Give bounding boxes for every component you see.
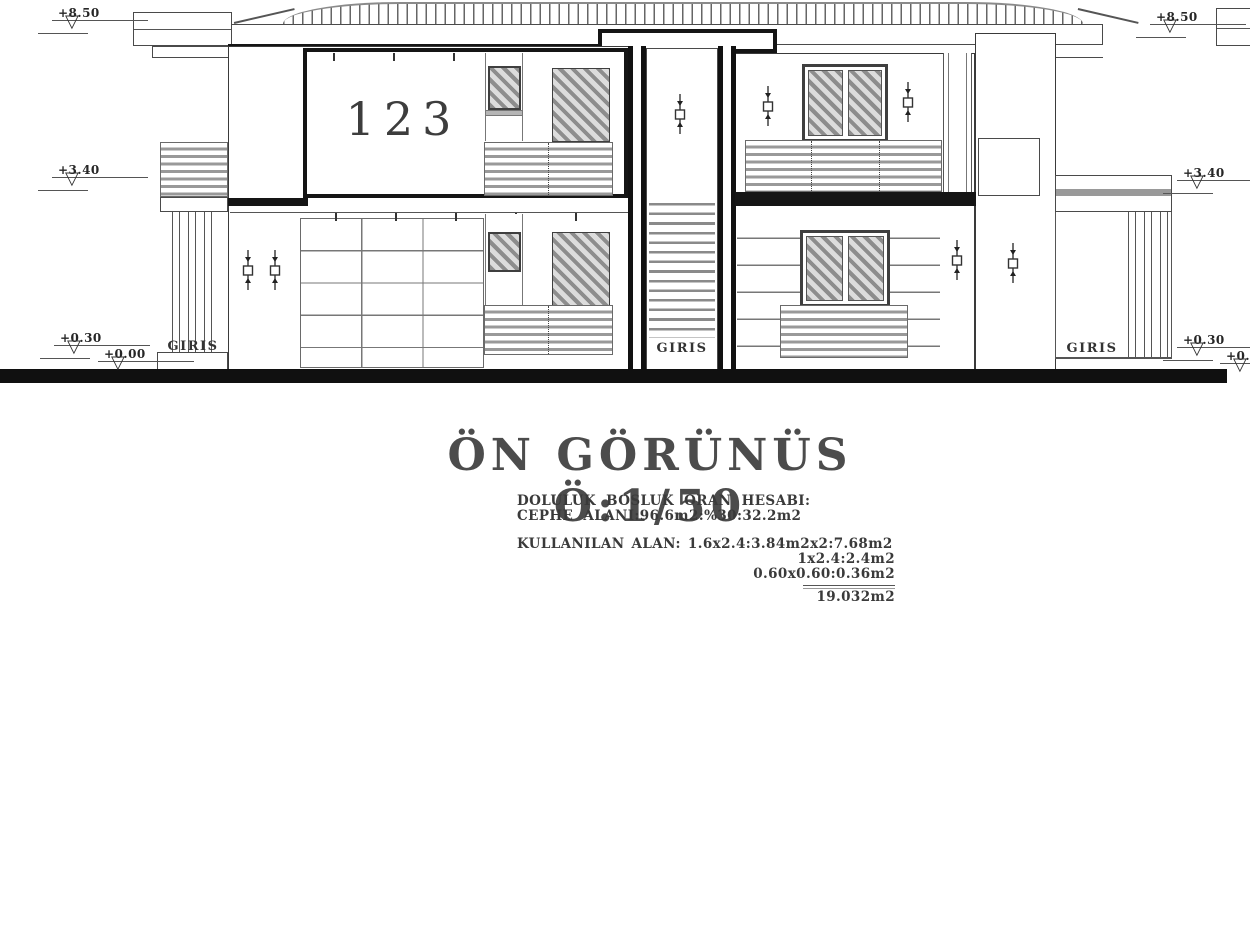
upper-large-window [552,68,610,142]
right-wing-canopy [1055,175,1172,212]
calc-used-area-3: 0.60x0.60:0.36m2 [505,567,905,582]
upper-small-window-sill [485,110,523,116]
right-wing-base-line [1055,357,1172,359]
tower-column-right [718,46,736,372]
tower-column-left [628,46,646,372]
calculation-block: DOLULUK BOSLUK ORAN HESABI: CEPHE ALANI:… [505,494,905,605]
left-wing-canopy-band [160,197,228,212]
upper-left-balcony-louvers [484,142,613,196]
ground-anchor-ticks [335,213,585,221]
pergola-slat [204,212,212,352]
elevation-marker-right-ground: +0.00 ▽ [1226,349,1250,389]
elevation-value: +0.00 [104,347,199,361]
chimney-duct [943,53,972,192]
calc-used-area-1: KULLANILAN ALAN: 1.6x2.4:3.84m2x2:7.68m2 [505,537,905,552]
calc-heading: DOLULUK BOSLUK ORAN HESABI: [505,494,905,509]
elevation-value: +8.50 [1156,10,1250,24]
ground-large-window [552,232,610,307]
elevation-marker-left-ground: +0.00 ▽ [104,347,199,387]
left-wing-eave-step [152,46,232,58]
calc-used-area-2: 1x2.4:2.4m2 [505,552,905,567]
stair-door-louvers [649,196,715,338]
light-fixture-icon [242,250,254,295]
ground-right-louvers [780,305,908,358]
roof-ridge-tiles [283,2,1083,24]
ground-stone-grid-panel [300,218,484,368]
elevation-marker-left-mid: +3.40 ▽ [58,163,153,203]
light-fixture-icon [269,250,281,295]
right-section-panel [978,138,1040,196]
elevation-value: +3.40 [1183,166,1250,180]
upper-small-window [488,66,521,110]
upper-right-double-window [802,64,888,142]
left-wing-canopy-louvers [160,142,228,197]
calc-total: 19.032m2 [505,590,905,605]
ground-right-double-window [800,230,890,307]
window-pane [848,70,883,136]
light-fixture-icon [674,94,686,139]
pergola-slat [188,212,196,352]
window-pane [806,236,843,301]
unit-number-label: 123 [318,92,488,146]
elevation-value: +0.00 [1226,349,1250,363]
entrance-center-label: GIRIS [646,341,718,356]
elevation-drawing: 123 GIRIS [0,0,1250,930]
pergola-slat [1160,212,1168,358]
elevation-marker-right-top: +8.50 ▽ [1156,10,1250,50]
right-section-wall [975,33,1056,370]
window-pane [808,70,843,136]
light-fixture-icon [1007,243,1019,288]
upper-right-balcony-louvers [745,140,942,192]
pergola-slat [1128,212,1136,358]
elevation-marker-right-mid: +3.40 ▽ [1183,166,1250,206]
elevation-marker-left-top: +8.50 ▽ [58,6,153,46]
elevation-value: +8.50 [58,6,153,20]
right-wing-frame [1055,212,1172,358]
ground-left-louvers [484,305,613,355]
window-pane [848,236,885,301]
light-fixture-icon [902,82,914,127]
elevation-value: +0.30 [1183,333,1250,347]
elevation-value: +3.40 [58,163,153,177]
roof-slope-right [1078,8,1139,23]
upper-slab-connector [228,198,308,206]
pergola-slat [1144,212,1152,358]
pergola-slat [172,212,180,352]
calc-facade-area: CEPHE ALANI:96.6m2:%30:32.2m2 [505,509,905,524]
light-fixture-icon [951,240,963,285]
ground-small-window [488,232,521,272]
right-slab-band [735,192,976,206]
light-fixture-icon [762,86,774,131]
elevation-value: +0.30 [60,331,155,345]
